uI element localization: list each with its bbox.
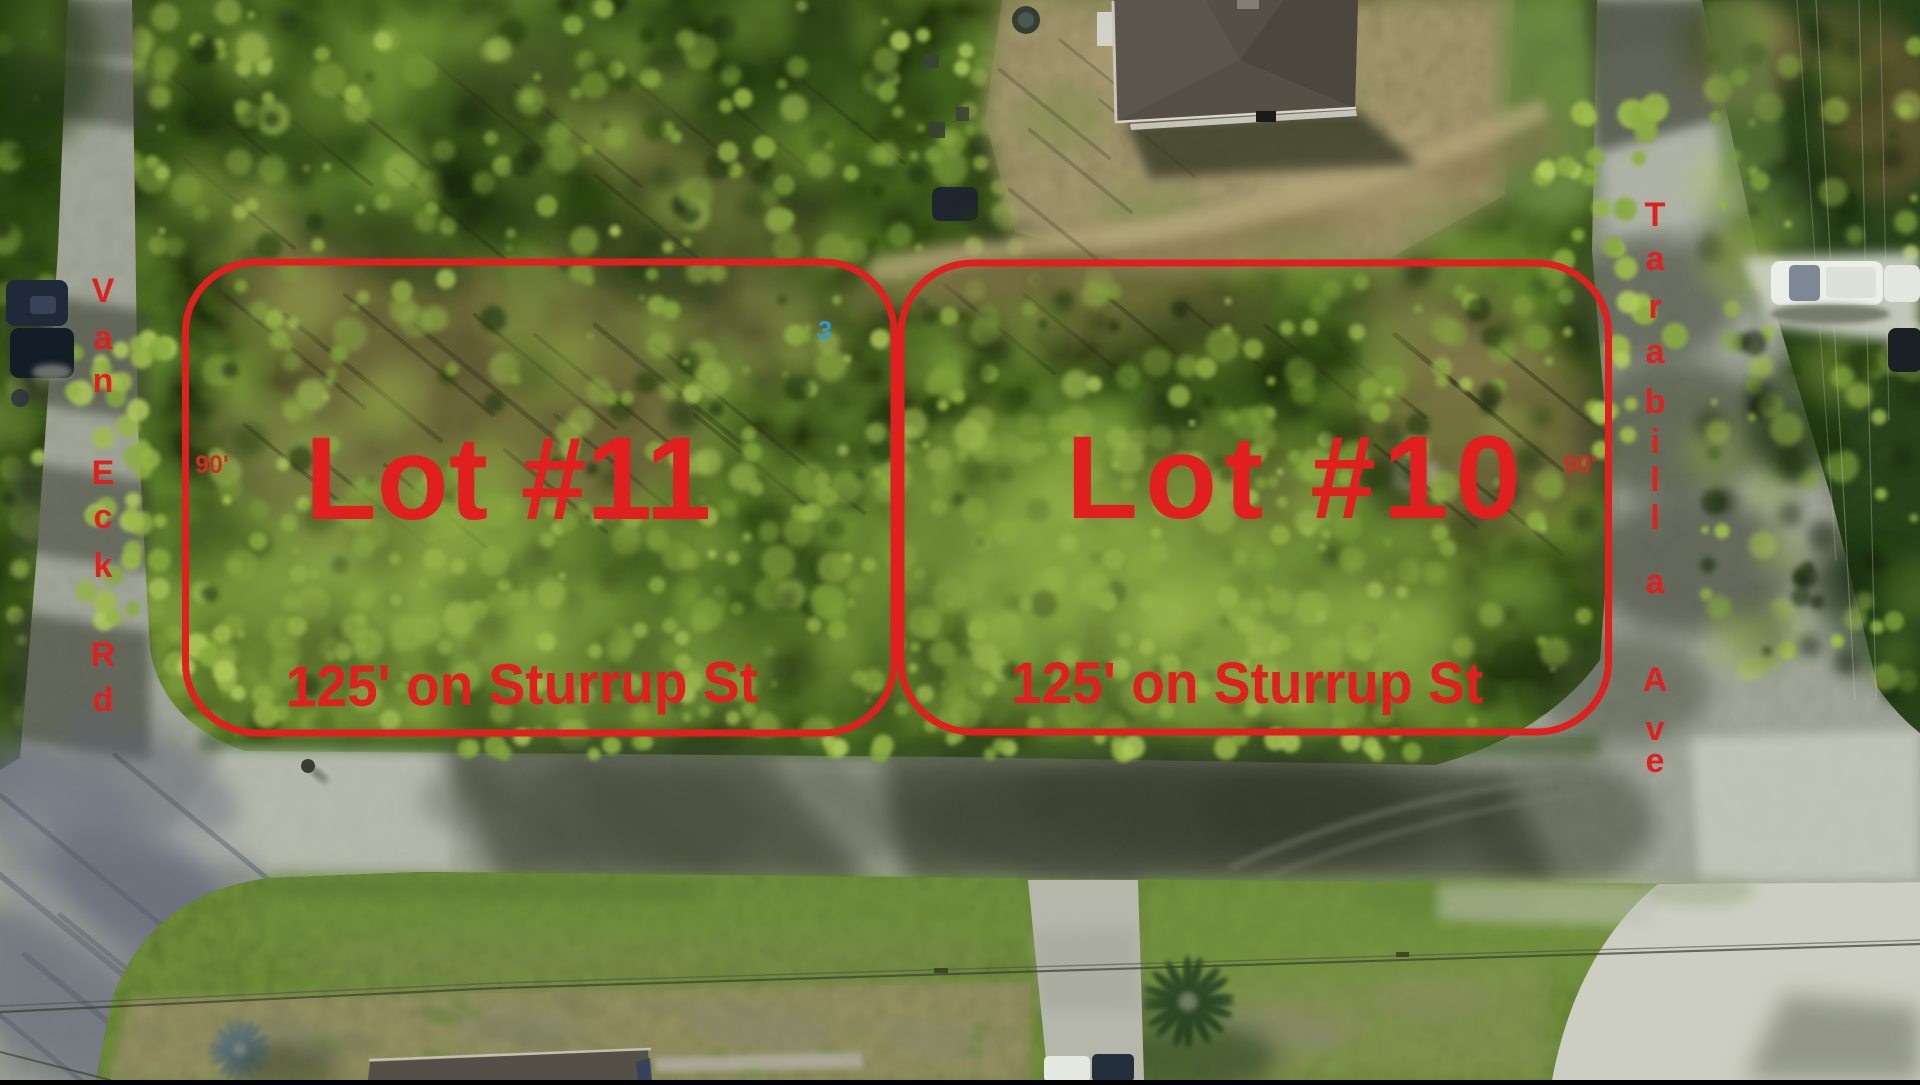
svg-text:l: l xyxy=(1650,499,1659,537)
svg-text:Lot #11: Lot #11 xyxy=(305,413,712,545)
svg-text:90': 90' xyxy=(195,451,229,479)
svg-text:125' on Sturrup St: 125' on Sturrup St xyxy=(285,649,758,719)
svg-text:c: c xyxy=(94,498,113,536)
svg-text:V: V xyxy=(92,272,115,310)
svg-text:d: d xyxy=(93,681,114,719)
svg-text:a: a xyxy=(94,319,114,357)
svg-text:b: b xyxy=(1645,383,1666,421)
svg-text:l: l xyxy=(1650,461,1659,499)
svg-text:k: k xyxy=(94,547,113,585)
svg-text:T: T xyxy=(1645,196,1666,234)
svg-text:i: i xyxy=(1650,423,1659,461)
svg-text:R: R xyxy=(91,636,116,674)
svg-text:E: E xyxy=(92,454,115,492)
svg-text:a: a xyxy=(1646,333,1666,371)
svg-text:a: a xyxy=(1646,563,1666,601)
svg-text:n: n xyxy=(93,362,114,400)
svg-text:a: a xyxy=(1646,240,1666,278)
svg-text:90': 90' xyxy=(1563,451,1597,479)
svg-text:e: e xyxy=(1646,742,1665,780)
svg-text:A: A xyxy=(1643,661,1668,699)
svg-text:125' on Sturrup St: 125' on Sturrup St xyxy=(1011,651,1483,716)
svg-text:Lot #10: Lot #10 xyxy=(1066,412,1528,544)
svg-text:r: r xyxy=(1648,288,1661,326)
